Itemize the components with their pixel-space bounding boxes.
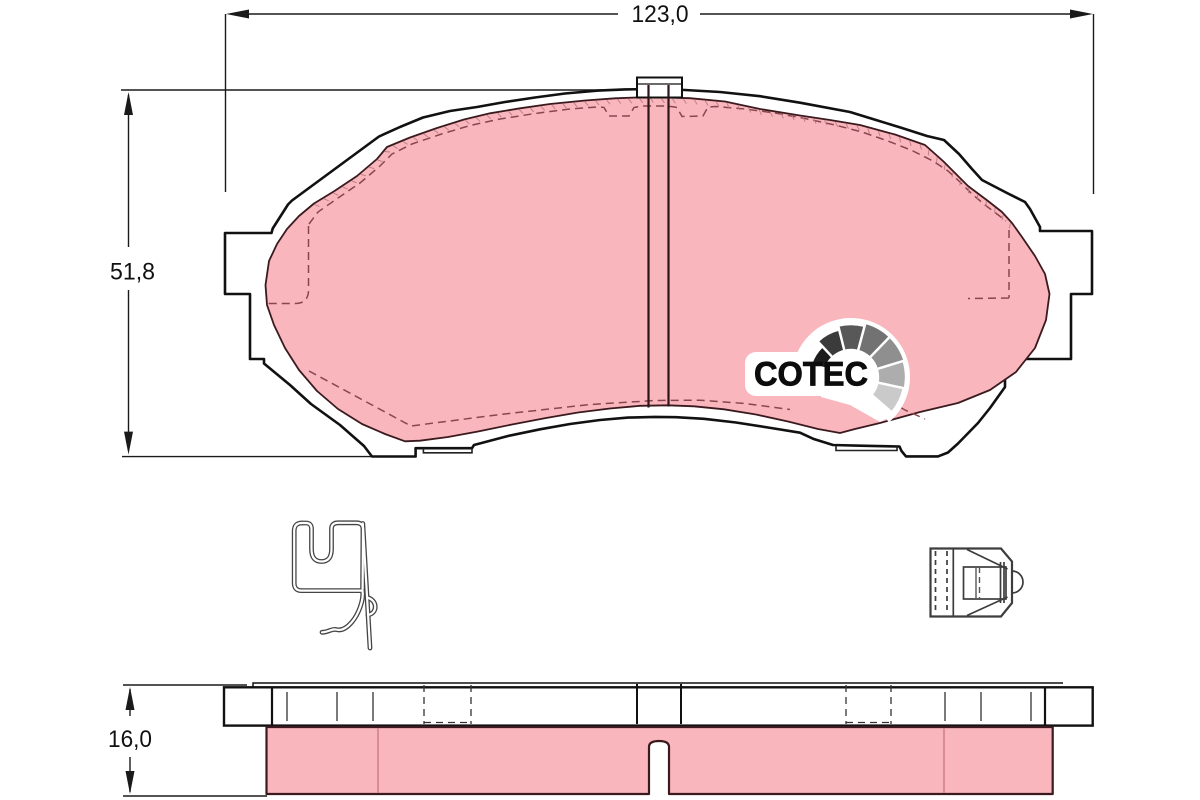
svg-text:16,0: 16,0 [108,726,152,753]
svg-text:123,0: 123,0 [632,1,689,28]
svg-text:COTEC: COTEC [754,356,868,394]
svg-text:51,8: 51,8 [110,259,155,286]
